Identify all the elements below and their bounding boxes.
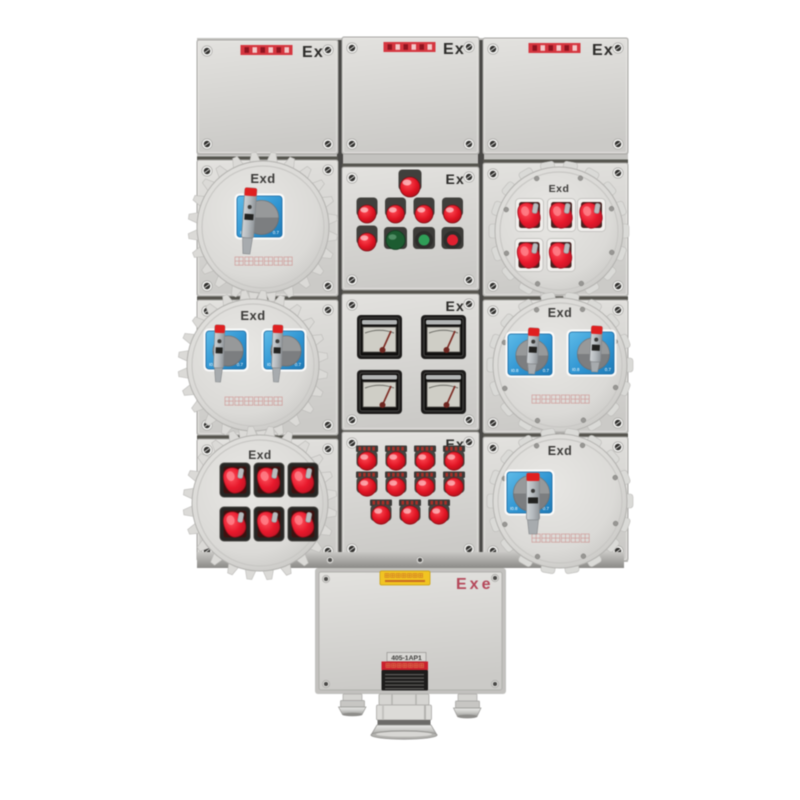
svg-text:Exd: Exd [250,171,275,186]
svg-text:Exd: Exd [549,183,570,195]
svg-text:Exe: Exe [456,576,493,593]
svg-text:Ex: Ex [302,44,324,61]
svg-text:Exd: Exd [548,306,572,320]
svg-text:0.7: 0.7 [605,367,612,372]
svg-text:0.7: 0.7 [273,230,280,235]
svg-text:I0.8: I0.8 [572,367,580,372]
svg-text:Ex: Ex [592,42,614,59]
svg-text:I0.8: I0.8 [511,368,519,373]
svg-text:Ex: Ex [443,41,465,58]
svg-text:0.7: 0.7 [543,368,550,373]
svg-text:Ex: Ex [445,171,465,187]
svg-text:Ex: Ex [445,298,465,314]
svg-text:Exd: Exd [248,448,272,462]
svg-text:Exd: Exd [548,444,572,458]
svg-text:Exd: Exd [240,308,265,323]
svg-text:I0.8: I0.8 [510,506,518,511]
svg-text:405-1AP1: 405-1AP1 [391,655,422,662]
